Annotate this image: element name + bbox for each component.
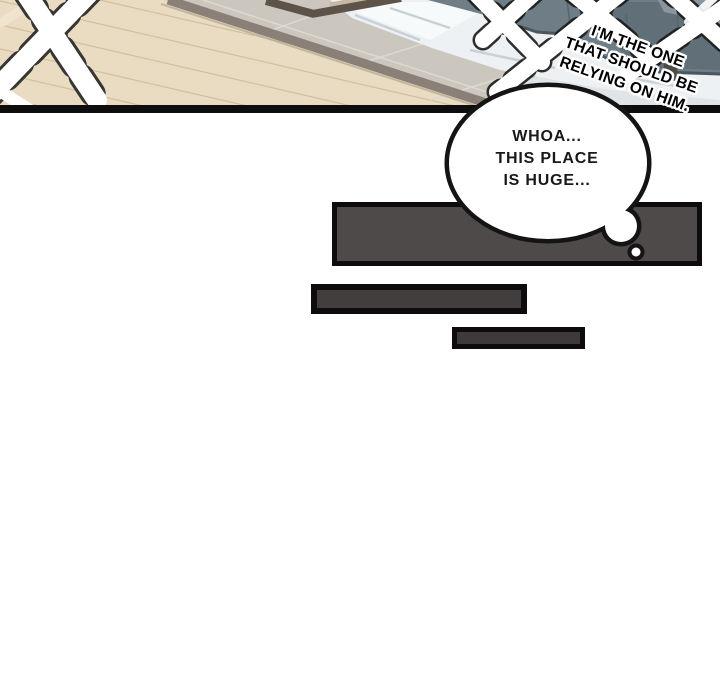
thought-trail-dot: [630, 246, 643, 259]
bubble-line: WHOA...: [447, 126, 647, 148]
redacted-bar-medium: [311, 284, 527, 314]
thought-bubble-text: WHOA... THIS PLACE IS HUGE...: [447, 126, 647, 192]
bubble-line: THIS PLACE: [447, 148, 647, 170]
redacted-bar-small: [452, 327, 585, 349]
bubble-line: IS HUGE...: [447, 170, 647, 192]
webtoon-page: I'M THE ONE THAT SHOULD BE RELYING ON HI…: [0, 0, 720, 700]
